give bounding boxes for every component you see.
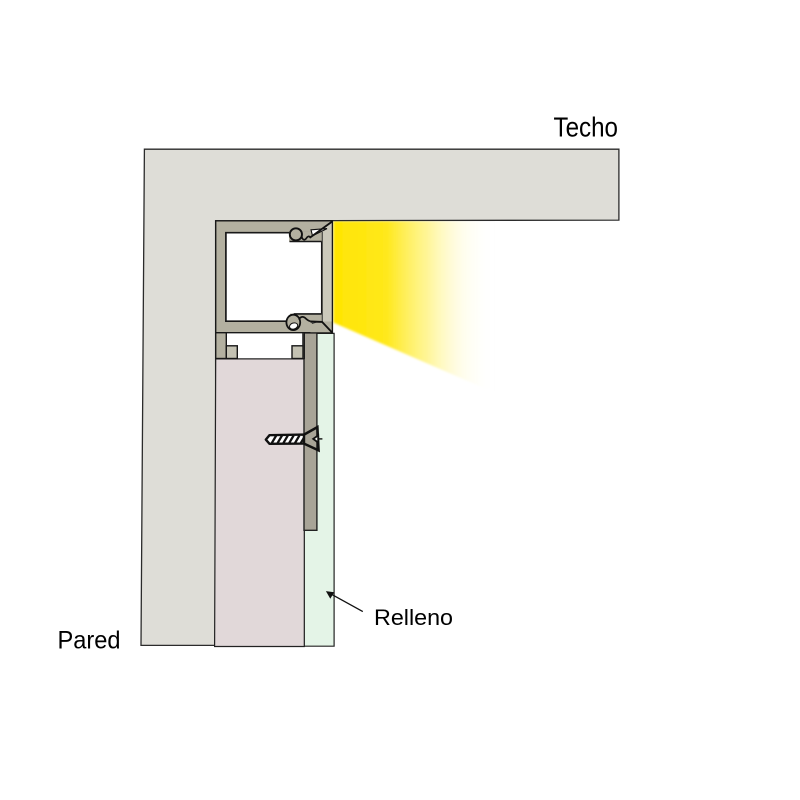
svg-text:Relleno: Relleno [374, 605, 453, 630]
svg-text:Pared: Pared [58, 626, 121, 654]
svg-text:Techo: Techo [554, 112, 619, 143]
